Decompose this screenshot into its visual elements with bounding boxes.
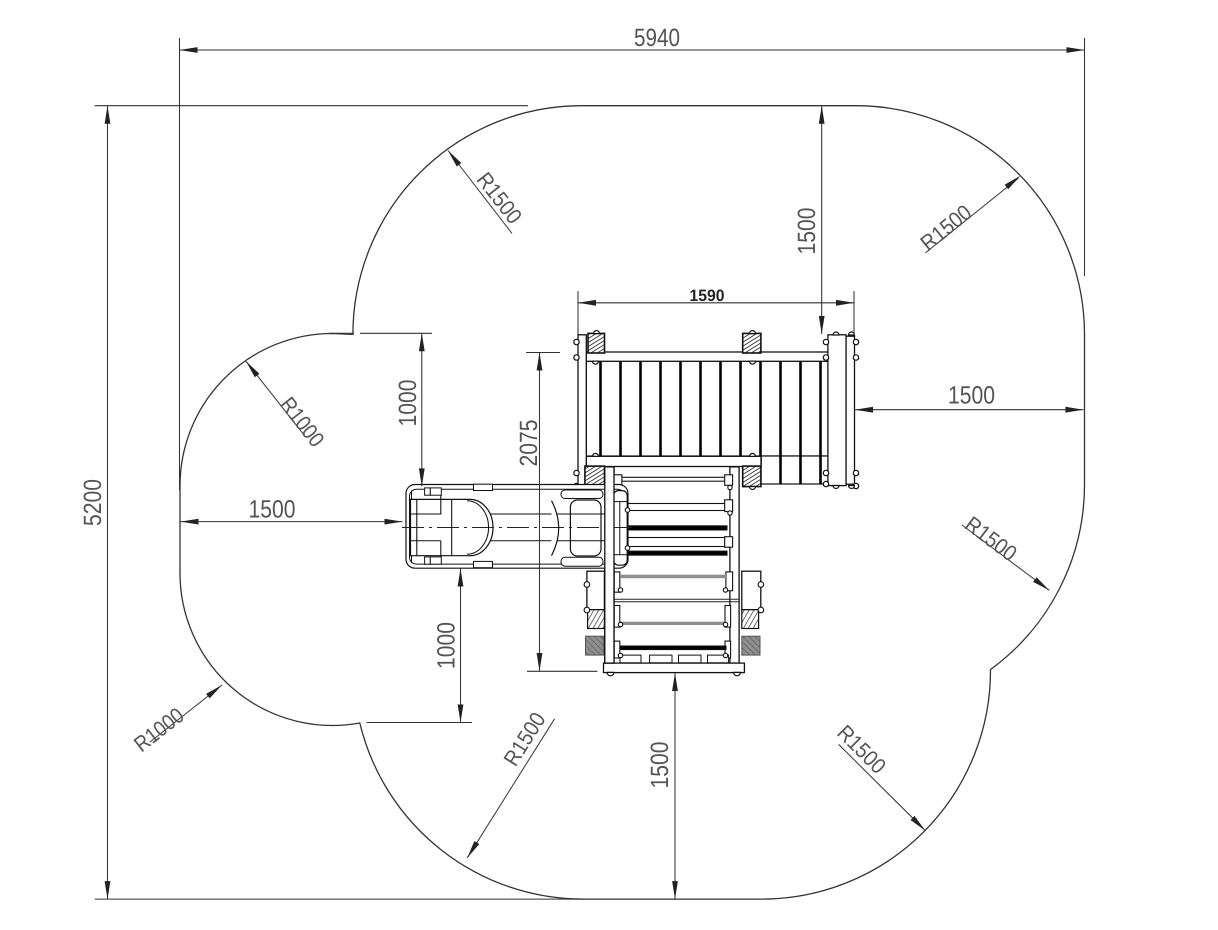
svg-text:1590: 1590	[690, 287, 725, 305]
svg-text:1000: 1000	[433, 622, 461, 669]
svg-text:1500: 1500	[793, 208, 821, 255]
svg-text:2075: 2075	[515, 420, 543, 467]
svg-text:1500: 1500	[948, 382, 995, 410]
svg-text:5200: 5200	[79, 479, 107, 526]
svg-text:1500: 1500	[249, 496, 296, 524]
svg-text:1500: 1500	[646, 742, 674, 789]
svg-text:1000: 1000	[394, 380, 422, 427]
svg-text:5940: 5940	[634, 24, 680, 52]
